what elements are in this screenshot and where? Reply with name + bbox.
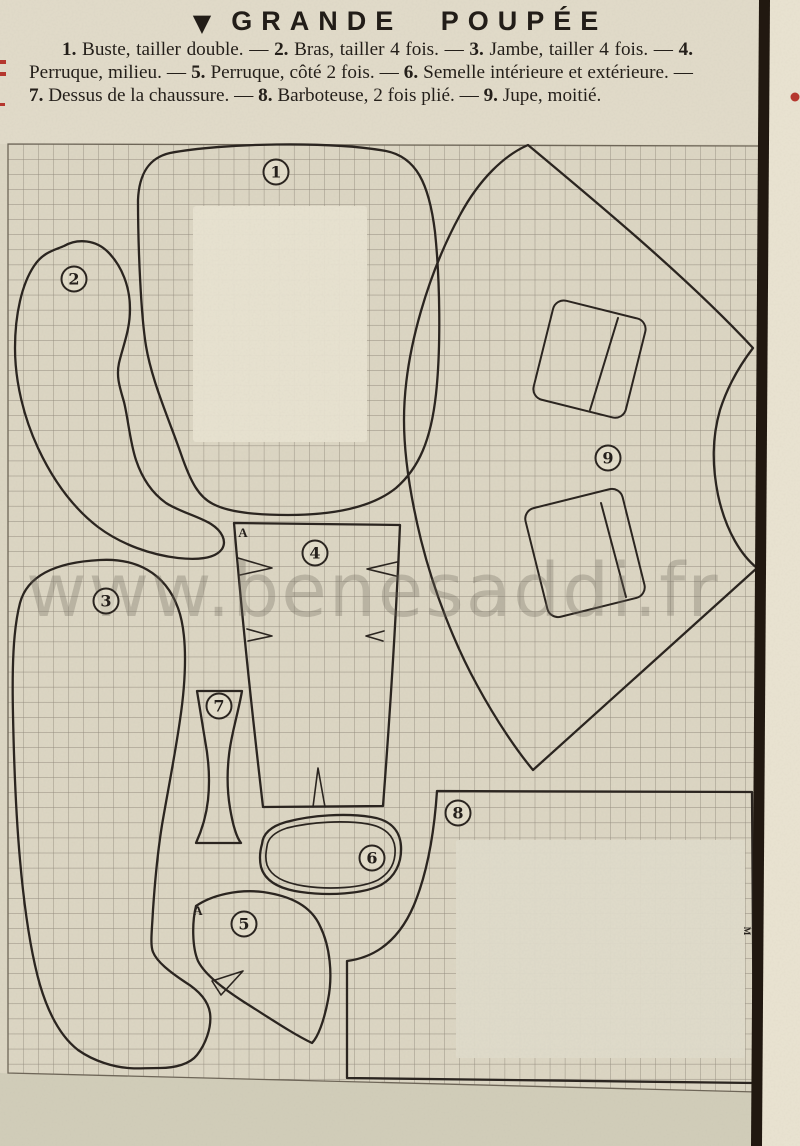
piece-5-number-badge: 5 xyxy=(231,911,258,938)
piece-1-number-badge: 1 xyxy=(263,159,290,186)
page-title-text: GRANDE POUPÉE xyxy=(231,6,607,36)
grid-marker-m: M xyxy=(742,927,752,936)
page-title: ▼GRANDE POUPÉE xyxy=(0,6,800,37)
grid-marker-a: A xyxy=(238,525,247,541)
grid-marker-a: A xyxy=(193,903,202,919)
pieces-legend: 1. Buste, tailler double. — 2. Bras, tai… xyxy=(29,38,693,108)
piece-3-number-badge: 3 xyxy=(93,588,120,615)
pattern-sheet-svg: www.benesaddi.fr xyxy=(0,0,800,1146)
piece-2-number-badge: 2 xyxy=(61,266,88,293)
scanned-pattern-page: www.benesaddi.fr ▼GRANDE POUPÉE 1. Buste… xyxy=(0,0,800,1146)
piece-9-number-badge: 9 xyxy=(595,445,622,472)
piece-7-number-badge: 7 xyxy=(206,693,233,720)
triangle-marker-icon: ▼ xyxy=(193,9,211,37)
watermark-text: www.benesaddi.fr xyxy=(26,548,720,634)
piece-6-number-badge: 6 xyxy=(359,845,386,872)
piece-8-number-badge: 8 xyxy=(445,800,472,827)
piece-4-number-badge: 4 xyxy=(302,540,329,567)
